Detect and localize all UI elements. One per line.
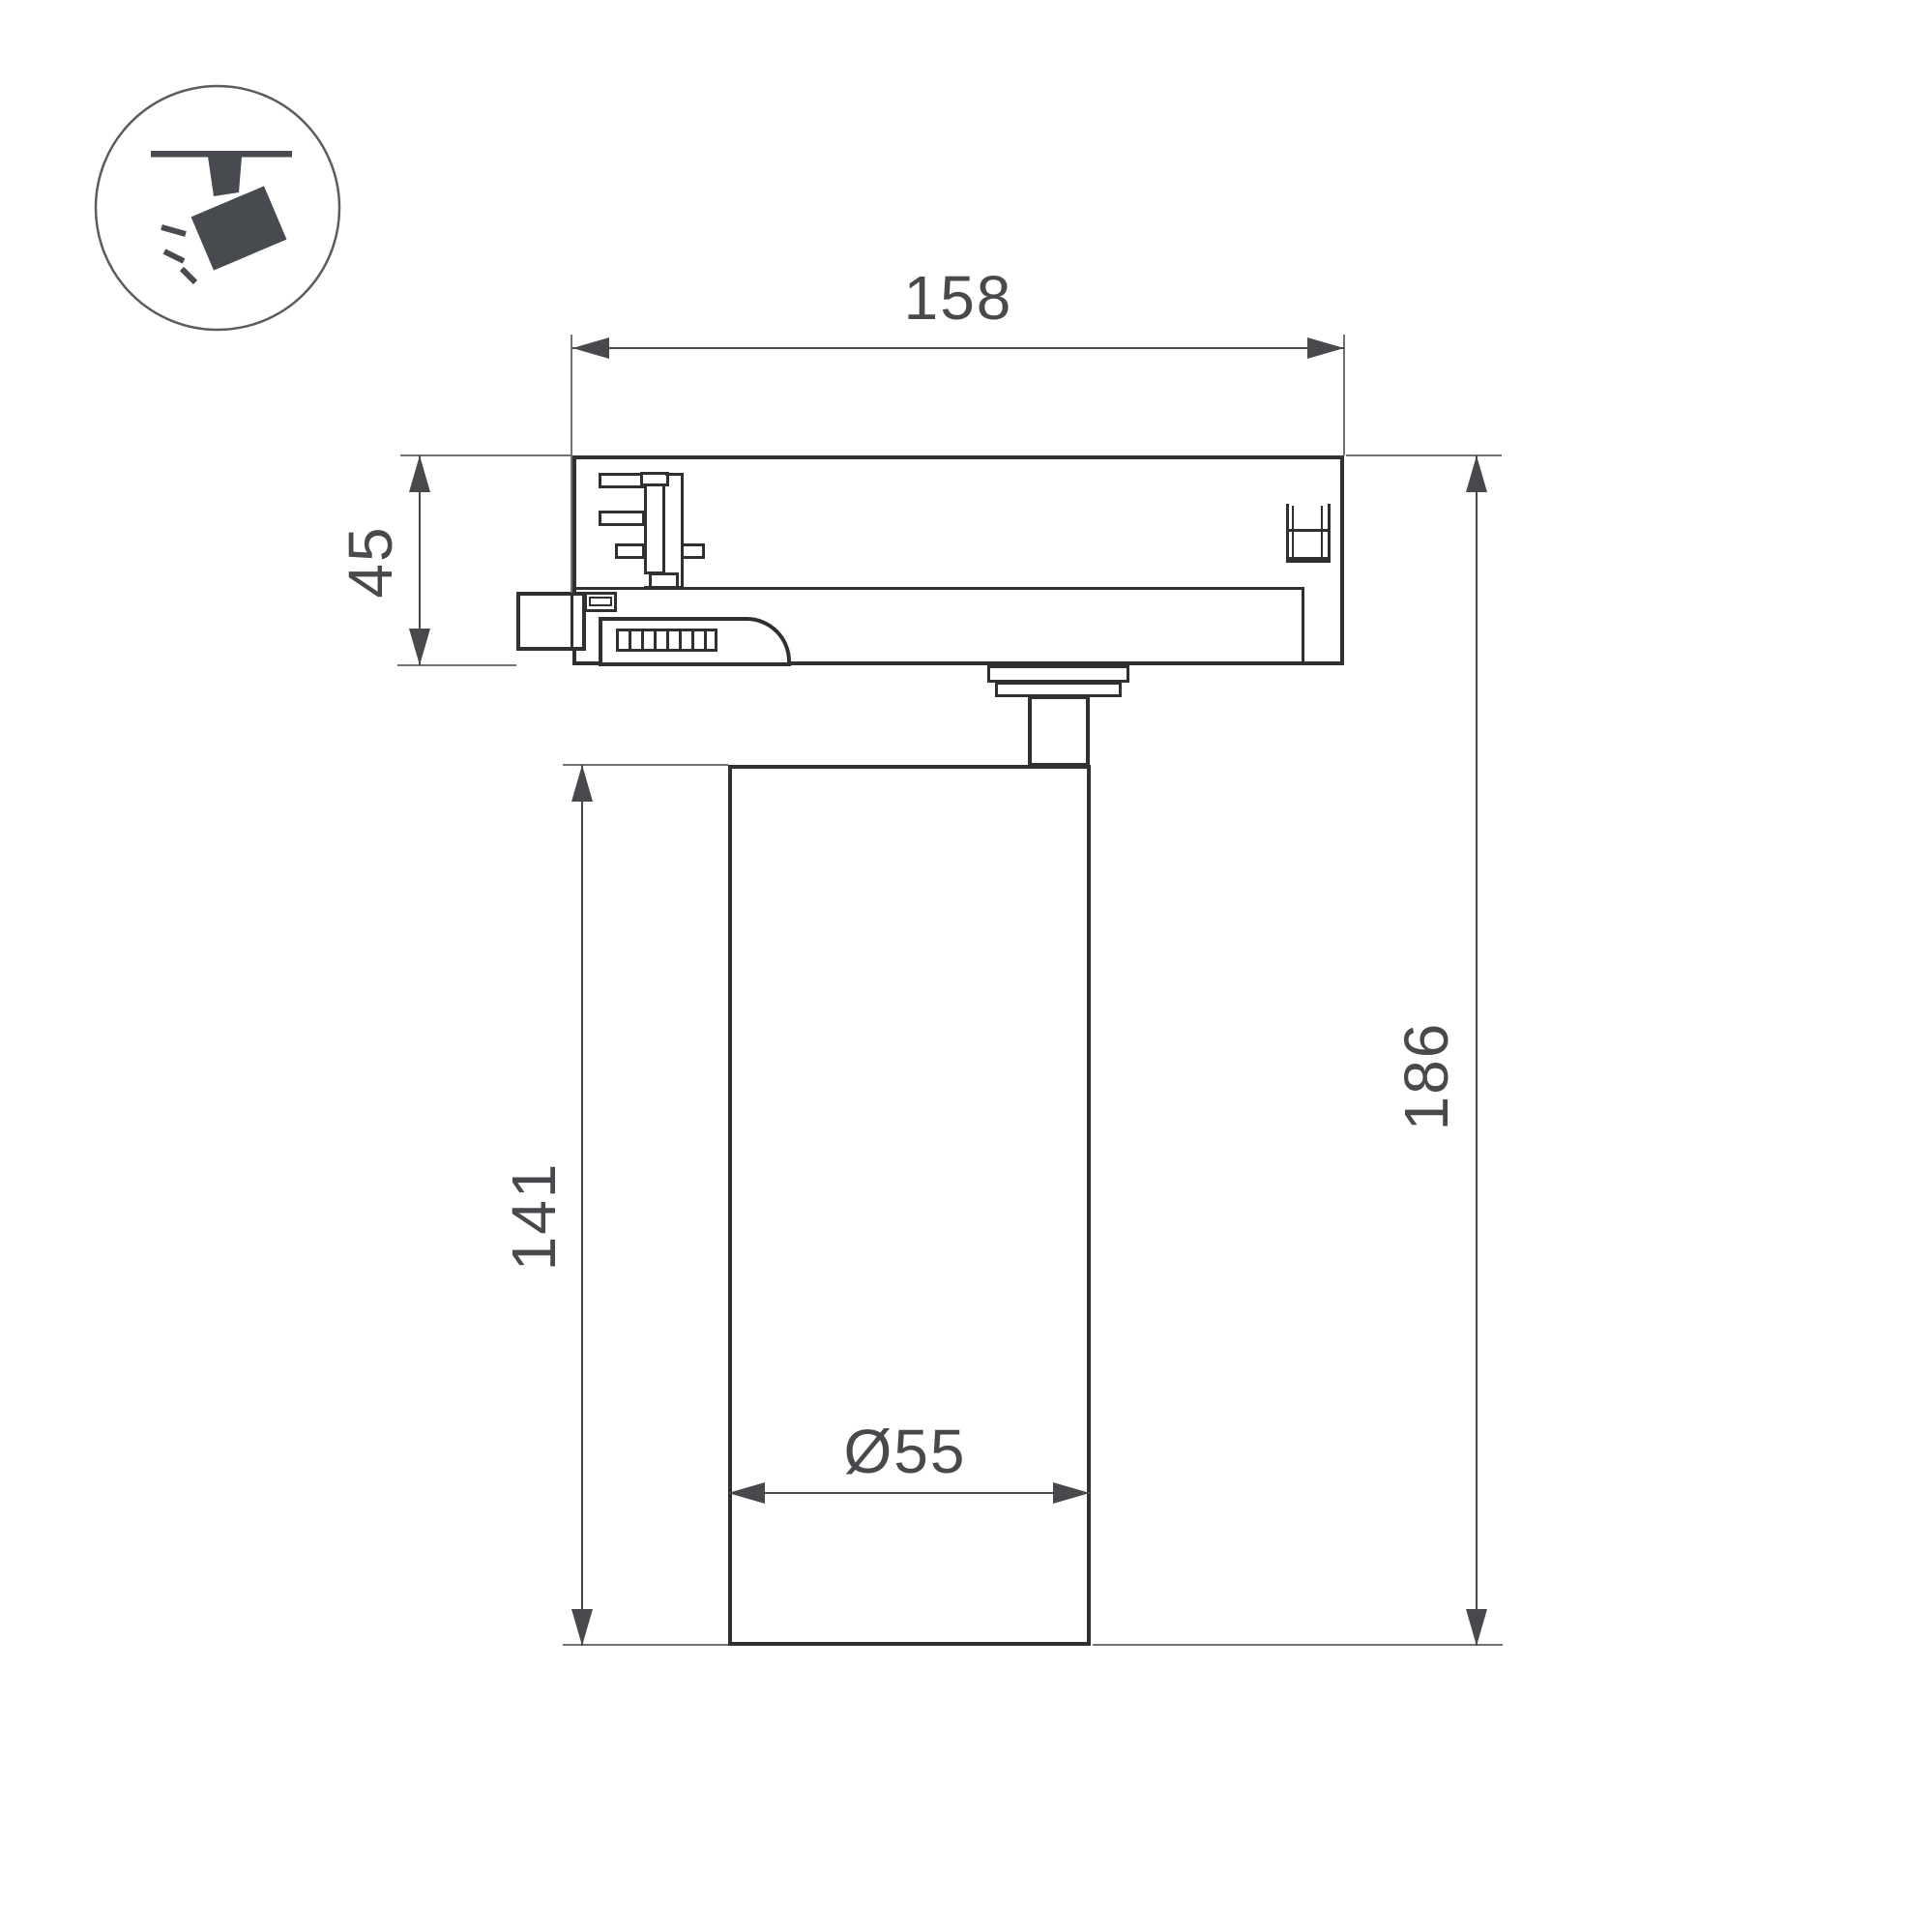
dim186-extension-bottom [1093, 1644, 1503, 1646]
contact-right-spine [681, 474, 684, 589]
mount-stem [1028, 695, 1090, 767]
contact-rod [644, 482, 665, 574]
dim55-arrow-right [1053, 1482, 1090, 1504]
dim45-arrow-down [409, 629, 430, 665]
lamp-cylinder-body [728, 765, 1091, 1646]
dim45-arrow-up [409, 455, 430, 492]
track-spotlight-icon [92, 82, 343, 334]
contact-prong-top [599, 473, 645, 488]
dim141-arrow-down [571, 1609, 593, 1646]
contact-right-tab [681, 543, 705, 559]
icon-track-bar [151, 151, 292, 158]
dim186-line [1476, 455, 1478, 1646]
adapter-endcap-line [1302, 587, 1304, 665]
switch-grill [616, 629, 717, 652]
contact-top-link [665, 473, 684, 476]
uclip-right-wall [1328, 504, 1331, 563]
dim141-label: 141 [498, 1162, 570, 1272]
contact-prong-low [615, 543, 645, 559]
dim55-arrow-left [728, 1482, 765, 1504]
uclip-left-wall [1286, 504, 1289, 563]
dim186-arrow-up [1466, 455, 1487, 492]
dim186-label: 186 [1390, 1022, 1462, 1131]
contact-prong-mid [599, 511, 645, 526]
uclip-middle-bar [1288, 529, 1329, 532]
uclip-left-inner [1292, 506, 1294, 559]
dim158-extension-left [571, 335, 572, 593]
dim158-arrow-right [1307, 337, 1344, 359]
latch-block [516, 592, 586, 651]
dim158-label: 158 [904, 262, 1013, 334]
dim55-line [728, 1492, 1090, 1494]
dimension-drawing: 158 45 141 186 Ø55 [0, 0, 1932, 1932]
dim158-line [572, 347, 1344, 349]
dim141-line [581, 765, 583, 1646]
uclip-bottom-bar [1286, 557, 1331, 563]
icon-mount-stem [208, 157, 242, 196]
dim158-arrow-left [572, 337, 609, 359]
latch-small-box-inner [589, 597, 612, 606]
dim141-arrow-up [571, 765, 593, 802]
mount-flange-upper [987, 665, 1129, 683]
dim55-label: Ø55 [844, 1416, 967, 1487]
dim186-arrow-down [1466, 1609, 1487, 1646]
contact-bottom-link [644, 586, 684, 589]
uclip-right-inner [1321, 506, 1323, 559]
dim45-label: 45 [335, 525, 406, 598]
adapter-left-edge-over-latch [571, 593, 573, 650]
